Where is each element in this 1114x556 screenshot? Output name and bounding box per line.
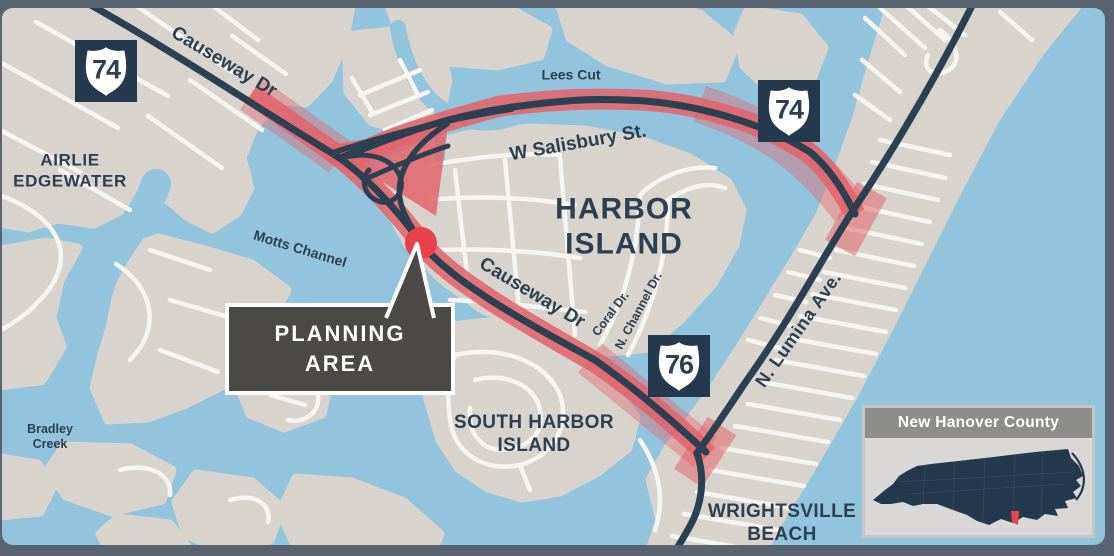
label-line: AIRLIE [13, 150, 127, 171]
north-carolina-state-icon [865, 438, 1092, 535]
callout-line2: AREA [305, 353, 375, 375]
route-number: 74 [758, 94, 820, 125]
label-line: ISLAND [454, 434, 614, 457]
label-wrightsville-beach: WRIGHTSVILLE BEACH [708, 500, 856, 546]
inset-body [865, 438, 1092, 535]
inset-title: New Hanover County [898, 414, 1059, 432]
nc-state-shape [873, 449, 1083, 525]
callout-pointer [378, 236, 442, 320]
label-line: HARBOR [555, 192, 693, 227]
us-74-shield-west: 74 [75, 40, 137, 102]
label-line: WRIGHTSVILLE [708, 500, 856, 523]
label-line: SOUTH HARBOR [454, 411, 614, 434]
label-line: EDGEWATER [13, 171, 127, 192]
county-locator-inset: New Hanover County [862, 405, 1095, 538]
label-line: ISLAND [555, 227, 693, 262]
islet-4 [2, 458, 52, 516]
callout-line1: PLANNING [275, 323, 406, 345]
route-number: 76 [648, 349, 710, 380]
label-line: Bradley [27, 422, 73, 437]
label-harbor-island: HARBOR ISLAND [555, 192, 693, 263]
label-line: BEACH [708, 523, 856, 546]
route-number: 74 [75, 54, 137, 85]
map-screenshot: PLANNING AREA 74 74 76 AIRLIE EDGEWATER … [0, 0, 1114, 556]
new-hanover-county-highlight [1011, 511, 1019, 525]
label-line: Creek [27, 437, 73, 452]
label-airlie-edgewater: AIRLIE EDGEWATER [13, 150, 127, 191]
inset-header: New Hanover County [865, 408, 1092, 438]
label-bradley-creek: Bradley Creek [27, 422, 73, 453]
us-74-shield-east: 74 [758, 80, 820, 142]
label-south-harbor-island: SOUTH HARBOR ISLAND [454, 411, 614, 457]
label-lees-cut: Lees Cut [541, 66, 600, 83]
us-76-shield: 76 [648, 335, 710, 397]
